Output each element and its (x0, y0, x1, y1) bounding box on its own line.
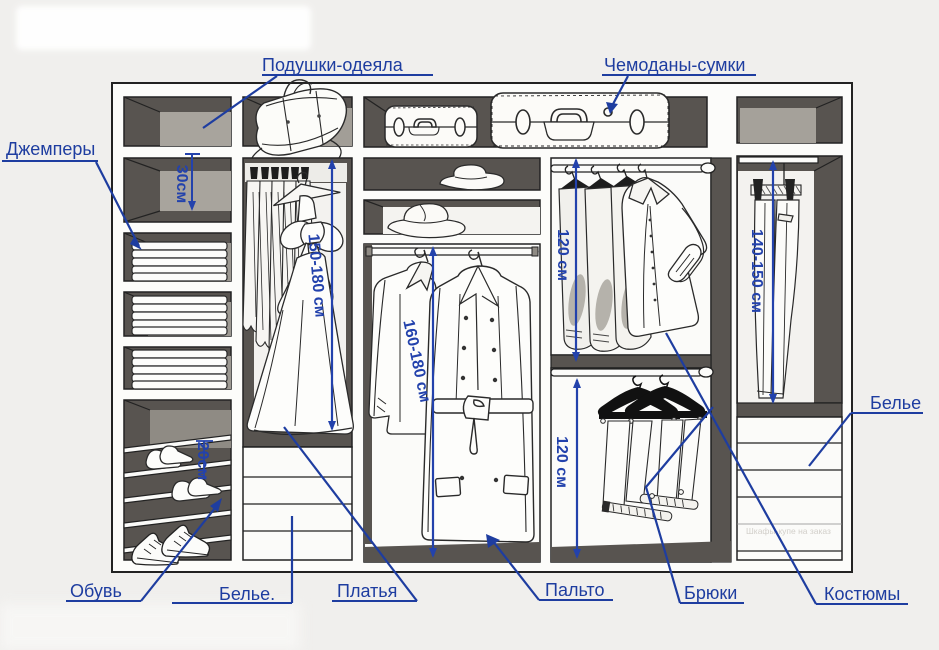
svg-text:20см: 20см (194, 442, 211, 481)
svg-text:Шкафы-купе на заказ: Шкафы-купе на заказ (746, 526, 831, 536)
svg-text:Пальто: Пальто (545, 580, 604, 600)
svg-text:120 см: 120 см (554, 229, 571, 281)
svg-text:Брюки: Брюки (684, 583, 737, 603)
svg-text:Белье.: Белье. (219, 584, 275, 604)
svg-text:140-150 см: 140-150 см (748, 229, 765, 313)
svg-text:120 см: 120 см (553, 436, 570, 488)
svg-text:Подушки-одеяла: Подушки-одеяла (262, 55, 404, 75)
svg-text:Платья: Платья (337, 581, 397, 601)
svg-text:Обувь: Обувь (70, 581, 122, 601)
svg-text:Костюмы: Костюмы (824, 584, 900, 604)
svg-text:30см: 30см (173, 165, 190, 204)
svg-text:Джемперы: Джемперы (6, 139, 95, 159)
svg-text:Белье: Белье (870, 393, 921, 413)
svg-text:Чемоданы-сумки: Чемоданы-сумки (604, 55, 746, 75)
